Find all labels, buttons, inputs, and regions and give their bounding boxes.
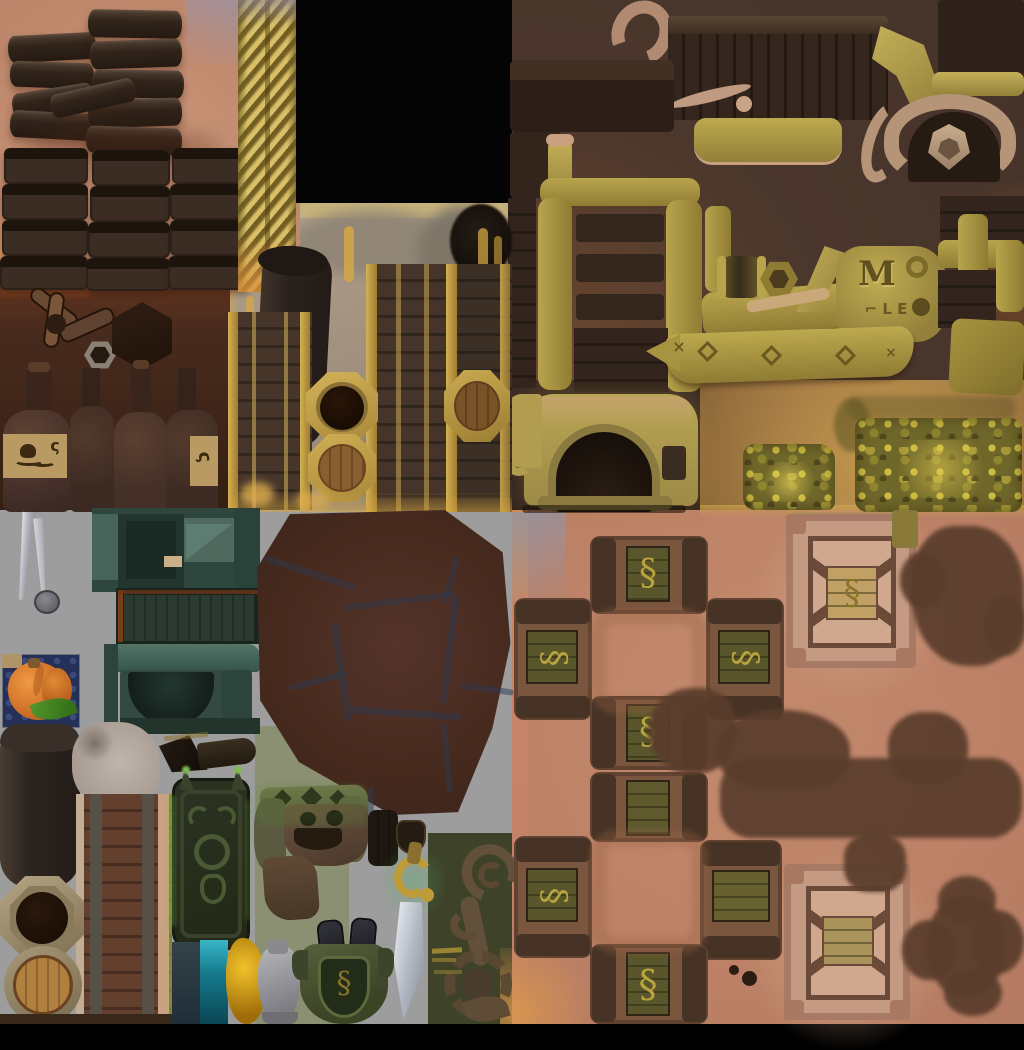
stair-rail-dark (142, 794, 154, 1024)
swatch-slate (172, 942, 200, 1024)
plank-lid (88, 222, 170, 258)
plank-lid (2, 220, 88, 256)
door-curl (188, 806, 210, 828)
ladder-rail (538, 198, 572, 390)
book-plank (90, 38, 183, 69)
crate-bar (682, 538, 706, 612)
engraved-mark (434, 970, 462, 974)
gold-slab (948, 318, 1024, 396)
stove-frame-edge (118, 590, 123, 642)
horn-glow (182, 766, 190, 774)
rope-top-tint (238, 0, 296, 26)
crate-bar (516, 600, 590, 624)
plank-lid (86, 258, 170, 291)
crate-bar (516, 838, 590, 862)
hearth-notch (662, 446, 686, 480)
speck-dot (742, 971, 757, 986)
book-plank (7, 32, 96, 64)
barrel-lid-wood (454, 381, 500, 431)
barrel-band-thin (284, 312, 288, 510)
metal-knob (34, 590, 60, 614)
silver-pouch-neck (268, 940, 288, 954)
dark-blob (844, 834, 906, 892)
light-crate-corner (890, 1000, 910, 1020)
ladder-rung (576, 294, 664, 320)
speck-dot (729, 965, 739, 975)
stove-recess (126, 521, 176, 579)
stove-slab (106, 644, 260, 672)
stove-block (234, 508, 260, 592)
plank-lid (2, 184, 88, 220)
gargoyle-mouth (294, 828, 342, 850)
silver-pouch-foot (262, 1012, 298, 1024)
light-crate-corner (786, 514, 806, 534)
hearth-pink-tint (530, 397, 692, 427)
crate-emblem: § (630, 956, 666, 1012)
texture-atlas-canvas: M⌐ L E××ςς§§§§§§§§ (0, 0, 1024, 1024)
light-crate-corner (786, 648, 806, 668)
light-crate-corner (896, 648, 916, 668)
stove-frame-face (124, 595, 254, 641)
bottle-neck (131, 364, 151, 414)
gold-bracket-vert (996, 240, 1024, 312)
door-glow-edge (246, 800, 250, 920)
crate-emblem: § (630, 548, 666, 600)
barrel-lid-hole (16, 892, 68, 944)
plank-lid (92, 150, 170, 186)
driftwood-knot (46, 314, 66, 334)
dark-chest-top (510, 60, 674, 80)
bottle-cork (133, 360, 149, 369)
plank-lid (90, 186, 170, 222)
br-blue-tint (512, 512, 566, 606)
glow-blob (296, 490, 330, 510)
light-crate-corner (784, 1000, 804, 1020)
crate-bar (708, 600, 782, 624)
crate-bar (516, 696, 590, 718)
gargoyle-green-tint (256, 784, 368, 826)
bottle-body (70, 406, 114, 512)
barrel-lid-hole (320, 386, 364, 430)
crate-panel (712, 870, 770, 922)
gold-post-cap (546, 134, 574, 146)
bottle-body (114, 412, 168, 512)
label-swirl: ς (191, 445, 216, 469)
glow-blob (240, 482, 274, 506)
dark-blob (938, 876, 996, 924)
crate-bar (592, 538, 616, 612)
barrel-column-top (0, 724, 80, 752)
shield-ear (378, 948, 394, 978)
dark-planks (574, 328, 668, 392)
bottom-strip (0, 1014, 172, 1024)
crate-emblem: § (532, 876, 576, 916)
olive-tab (892, 510, 918, 548)
coin-pile-small-glow (757, 462, 821, 502)
bottle-cork (28, 362, 50, 372)
door-ring (194, 834, 230, 870)
dark-blob (902, 920, 956, 980)
stove-leg (222, 670, 252, 724)
hearth-shadow (522, 505, 686, 513)
crate-emblem: § (532, 638, 576, 678)
door-heart (200, 874, 226, 904)
crate-panel (626, 780, 670, 836)
plaque-ring (906, 256, 928, 278)
coin-pile-large-glow (886, 440, 996, 498)
light-crate-panel (822, 916, 874, 966)
engraved-mark (432, 958, 456, 962)
plaque-dot (912, 298, 930, 316)
crate-cross-shadow (590, 830, 708, 954)
winch-rim (717, 256, 726, 298)
stove-leg (104, 644, 118, 734)
barrel-lid-wood (13, 955, 73, 1015)
swatch-teal (200, 940, 228, 1024)
dark-blob (984, 596, 1024, 656)
stair-rail-dark (90, 794, 102, 1024)
cloth-spot (76, 724, 114, 762)
br-orange-glow (500, 948, 596, 1024)
gold-stick (344, 226, 354, 282)
barrel-band-thin (396, 264, 401, 512)
crate-bar (516, 934, 590, 956)
stove-frame-edge-top (118, 590, 258, 594)
shield-ear (292, 950, 308, 980)
door-glow-edge (170, 796, 175, 926)
crate-emblem: § (724, 638, 768, 678)
scroll-volute-core (478, 862, 504, 888)
bottle-neck (26, 366, 52, 416)
light-crate-emblem: § (834, 568, 870, 618)
winch-cylinder (721, 256, 761, 298)
crate-bar (682, 946, 706, 1022)
door-curl (214, 806, 236, 828)
light-crate-corner (784, 864, 804, 884)
dark-blob (944, 970, 1002, 1016)
book-plank (88, 9, 182, 39)
shield-sigil: § (332, 964, 356, 1004)
bottle-neck (178, 368, 196, 414)
barrel-band (228, 312, 238, 510)
pink-strap-knob (736, 96, 752, 112)
black-rect (290, 0, 512, 203)
horn-glow (234, 766, 242, 774)
barrel-lid-wood (318, 444, 366, 492)
crate-bar (592, 946, 616, 1022)
crate-bar (702, 936, 780, 958)
gold-bar-right (932, 72, 1024, 96)
barrel-band-thin (424, 264, 429, 512)
barrel-side-panel (366, 264, 458, 512)
coin-clump (846, 396, 1016, 420)
label-swirl: ς (46, 436, 64, 456)
banner-mark: × (882, 344, 900, 362)
dark-box-right (938, 0, 1024, 76)
plank-lid (4, 148, 88, 184)
dark-blob (720, 758, 1022, 838)
dark-blob (888, 712, 968, 784)
sword-pommel (420, 888, 434, 902)
plank-lid (0, 256, 88, 290)
plank-panel-cap (668, 16, 888, 34)
plaque-letter: M (848, 252, 906, 296)
gargoyle-arm (262, 854, 320, 922)
stem (28, 658, 40, 668)
barrel-band-thin (252, 312, 256, 510)
gold-tray (694, 118, 842, 162)
banner-mark: × (670, 338, 688, 356)
dark-planks (508, 198, 536, 388)
crate-bar (702, 842, 780, 866)
kraken-tentacle (30, 458, 56, 467)
ladder-rung (576, 254, 664, 282)
dark-blob (900, 552, 946, 608)
stove-sliver (164, 556, 182, 567)
ladder-rung (576, 214, 664, 242)
